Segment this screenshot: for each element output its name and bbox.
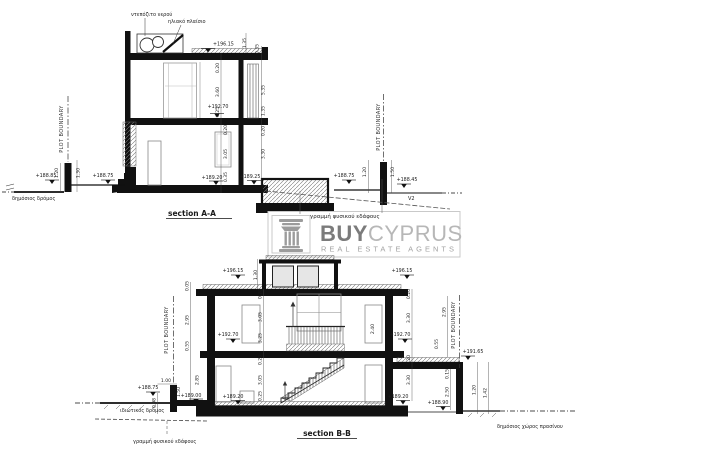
bb-level-marker [398, 339, 412, 343]
aa-level-ground-left: +189.20 [202, 175, 223, 181]
aa-public-road-label: δημόσιος δρόμος [12, 195, 55, 202]
aa-dim-u-slab: 0.20 [215, 63, 221, 73]
aa-stair-hatch [123, 122, 136, 166]
bb-balcony-balusters [287, 327, 345, 344]
bb-plot-boundary-right-label: PLOT BOUNDARY [451, 301, 457, 349]
bb-level-marker [461, 356, 475, 360]
bb-level-roof-left: +196.15 [223, 268, 244, 274]
bb-dim-terr-h: 2.50 [445, 387, 451, 397]
bb-dim-r-g-room: 3.30 [406, 375, 412, 385]
aa-exterior-steps [112, 167, 136, 193]
logo-wordmark: BUYCYPRUS [320, 221, 463, 246]
aa-title: section A-A [168, 209, 216, 218]
sections-drawing: ντεπόζιτο νερού ηλιακό πλαίσιο PLOT BOUN… [0, 0, 705, 459]
bb-dim-r-par-a: 2.95 [442, 307, 448, 317]
bb-level-terrace: +191.65 [463, 349, 484, 355]
bb-entrance-platform [177, 400, 207, 406]
aa-level-roof: +196.15 [213, 42, 234, 48]
bb-dim-door-u: 2.40 [370, 324, 376, 334]
bb-level-marker [436, 407, 450, 411]
bb-level-yard: +188.90 [428, 400, 449, 406]
aa-level-far-right: +188.45 [397, 177, 418, 183]
mid-ground-line-label: γραμμή φυσικού εδάφους [310, 213, 380, 220]
aa-level-marker [247, 181, 261, 185]
aa-dim-rw-a: 1.20 [362, 167, 368, 177]
aa-dim-louver-b: 1.35 [261, 106, 267, 116]
bb-roof-slab [196, 289, 408, 296]
section-a-a: ντεπόζιτο νερού ηλιακό πλαίσιο PLOT BOUN… [2, 11, 462, 219]
bb-stair-stringer [281, 365, 344, 403]
bb-dim-u-total: 3.25 [258, 333, 264, 343]
aa-dim-l-slab: 0.20 [223, 125, 229, 135]
bb-plot-boundary-left-label: PLOT BOUNDARY [164, 306, 170, 354]
aa-roof-insulation-hatch [192, 49, 264, 54]
bb-road-tick [492, 413, 496, 417]
aa-dim-r-room: 3.30 [261, 149, 267, 159]
section-b-b: PLOT BOUNDARY PLOT BOUNDARY ιδιωτικός δρ… [75, 256, 575, 446]
bb-green-space-label: δημόσιος χώρος πρασίνου [497, 423, 563, 430]
aa-level-marker [342, 180, 356, 184]
aa-level-marker [45, 180, 59, 184]
bb-dim-lw-b: 1.50 [176, 387, 182, 397]
aa-level-marker [397, 184, 411, 188]
bb-level-ground-right: +189.20 [388, 394, 409, 400]
logo-tagline: REAL ESTATE AGENTS [321, 245, 457, 254]
aa-level-pavement: +188.75 [93, 173, 114, 179]
bb-left-boundary-wall [170, 385, 177, 412]
bb-dim-u-room: 3.05 [258, 312, 264, 322]
bb-dim-r-u-room: 3.30 [406, 313, 412, 323]
aa-dim-rw-b: 1.50 [390, 167, 396, 177]
aa-water-tank-1 [140, 38, 154, 52]
bb-dim-lw-c: 0.98 [152, 398, 158, 408]
bb-dim-ext-u: 2.95 [185, 315, 191, 325]
bb-lower-right-door [365, 365, 382, 403]
aa-level-marker [101, 180, 115, 184]
bb-dim-lw-a: 1.00 [161, 378, 171, 384]
aa-break-tick [6, 184, 14, 186]
bb-level-marker [146, 392, 160, 396]
bb-up-arrow-head [291, 302, 296, 307]
bb-dim-coping: 0.05 [185, 281, 191, 291]
aa-water-tank-label: ντεπόζιτο νερού [131, 11, 172, 18]
aa-louver-screen [248, 64, 259, 118]
aa-ground-slab [117, 185, 268, 193]
bb-dim-r-par-b: 0.55 [434, 339, 440, 349]
architectural-drawing-sheet: ντεπόζιτο νερού ηλιακό πλαίσιο PLOT BOUN… [0, 0, 705, 459]
aa-roof-edge-block [262, 47, 268, 60]
aa-dim-roof-edge: 0.35 [255, 44, 261, 54]
aa-water-tank-2 [153, 37, 164, 48]
bb-dim-rw-b: 1.42 [483, 388, 489, 398]
bb-road-tick [468, 413, 472, 417]
aa-dim-louver-h: 5.35 [261, 85, 267, 95]
bb-level-marker [231, 275, 245, 279]
aa-dim-u-room: 3.60 [215, 87, 221, 97]
aa-plot-boundary-left-label: PLOT BOUNDARY [59, 105, 65, 153]
bb-level-marker [400, 275, 414, 279]
bb-dim-g-sill: 0.25 [258, 391, 264, 401]
aa-level-ground-right: +189.25 [240, 174, 261, 180]
bb-dim-ext-m: 0.55 [185, 341, 191, 351]
aa-dim-panel: 1.35 [242, 38, 248, 48]
aa-break-tick [6, 188, 14, 190]
bb-dim-rw-a: 1.20 [472, 385, 478, 395]
bb-upper-left-door [242, 305, 260, 343]
bb-dim-r-u-slab: 0.20 [406, 289, 412, 299]
aa-v2-label: V2 [408, 196, 415, 202]
bb-stair-railing-band [281, 358, 344, 401]
aa-solar-panel-label: ηλιακό πλαίσιο [168, 18, 206, 25]
bb-ground-slab [196, 406, 408, 417]
aa-dim-l-room: 3.05 [223, 149, 229, 159]
bb-bulkhead-wall [334, 264, 338, 290]
aa-dim-u-sill: 0.25 [215, 107, 221, 117]
bb-level-roof-right: +196.15 [392, 268, 413, 274]
bb-stair-arrow-head [283, 381, 287, 386]
logo-buy-text: BUY [320, 221, 368, 246]
bb-roof-tank-1 [273, 266, 294, 287]
aa-level-yard-right: +188.75 [334, 173, 355, 179]
aa-plot-boundary-right-label: PLOT BOUNDARY [376, 103, 382, 151]
bb-level-marker [396, 401, 410, 405]
bb-balcony-slab-hatch [287, 344, 345, 351]
bb-level-entrance: +189.00 [181, 393, 202, 399]
bb-bulkhead-wall [262, 264, 266, 290]
bb-ground-line-label: γραμμή φυσικού εδάφους [133, 438, 196, 445]
bb-level-road: +188.75 [138, 385, 159, 391]
bb-mid-slab [200, 351, 404, 358]
bb-dim-ext-g: 2.85 [195, 375, 201, 385]
bb-dim-u-slab: 0.20 [258, 289, 264, 299]
bb-bulkhead-roof [259, 260, 341, 264]
aa-dim-lw-a: 1.20 [54, 168, 60, 178]
bb-level-first-right: +192.70 [390, 332, 411, 338]
aa-dim-r-slab: 0.20 [261, 126, 267, 136]
aa-dim-lw-b: 1.30 [76, 168, 82, 178]
bb-dim-terr-slab: 0.15 [445, 369, 451, 379]
bb-terrace-slab [393, 362, 463, 369]
bb-dim-bulkhead: 1.30 [253, 270, 259, 280]
aa-mid-slab [125, 118, 268, 125]
bb-dim-r-g-slab: 0.20 [406, 355, 412, 365]
aa-left-boundary-wall [65, 163, 72, 192]
aa-dim-l-plinth: 0.35 [223, 172, 229, 182]
bb-level-first-left: +192.70 [218, 332, 239, 338]
aa-lower-door [148, 141, 161, 185]
aa-planter-basin [262, 179, 328, 205]
bb-dim-g-slab: 0.20 [258, 355, 264, 365]
bb-roof-tank-2 [298, 266, 319, 287]
bb-road-tick [480, 413, 484, 417]
aa-right-boundary-wall [380, 162, 387, 205]
aa-roof-slab [125, 53, 268, 60]
bb-level-ground-left: +189.20 [223, 394, 244, 400]
bb-bulkhead-insulation [266, 256, 334, 260]
aa-level-road: +188.85 [36, 173, 57, 179]
bb-right-boundary-wall [456, 369, 463, 414]
bb-dim-g-room: 3.05 [258, 375, 264, 385]
bb-floor-hatch [215, 402, 385, 406]
bb-level-marker [226, 339, 240, 343]
bb-private-road-label: ιδιωτικός δρόμος [120, 407, 164, 414]
bb-road-tick [104, 405, 108, 409]
bb-title: section B-B [303, 429, 351, 438]
logo-cyprus-text: CYPRUS [368, 221, 463, 246]
bb-natural-ground-dashed [95, 419, 207, 421]
